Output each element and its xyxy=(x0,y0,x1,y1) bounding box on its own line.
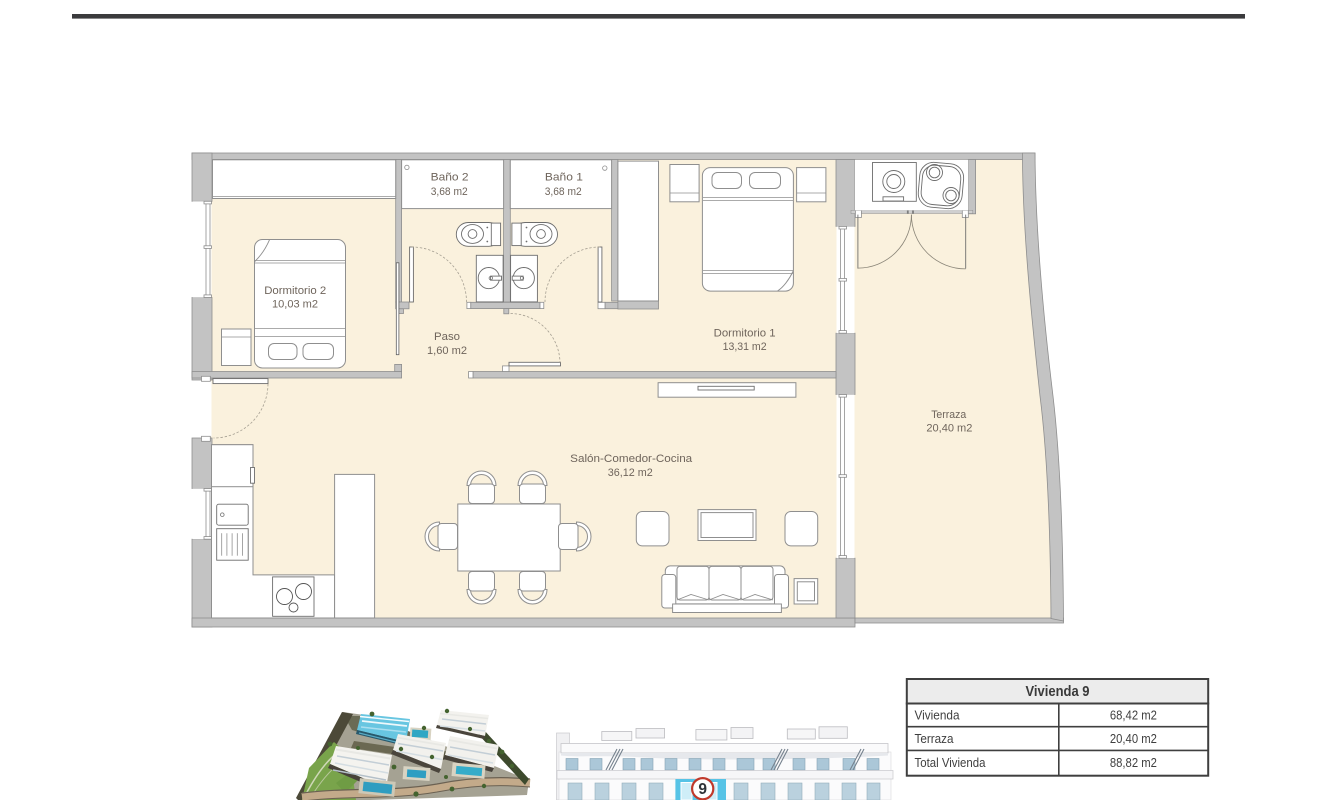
svg-text:Vivienda: Vivienda xyxy=(915,708,961,723)
svg-text:Baño 2: Baño 2 xyxy=(431,172,469,184)
svg-text:20,40 m2: 20,40 m2 xyxy=(926,423,972,435)
svg-text:Salón-Comedor-Cocina: Salón-Comedor-Cocina xyxy=(570,453,693,465)
svg-text:Terraza: Terraza xyxy=(915,731,955,746)
svg-text:Dormitorio 1: Dormitorio 1 xyxy=(714,328,776,340)
svg-text:Total Vivienda: Total Vivienda xyxy=(915,755,987,770)
svg-text:10,03 m2: 10,03 m2 xyxy=(272,299,318,311)
svg-text:88,82 m2: 88,82 m2 xyxy=(1110,755,1157,770)
svg-text:9: 9 xyxy=(698,781,707,798)
svg-text:36,12 m2: 36,12 m2 xyxy=(608,467,653,479)
svg-text:3,68 m2: 3,68 m2 xyxy=(431,186,468,198)
svg-text:Paso: Paso xyxy=(434,331,460,343)
svg-text:68,42 m2: 68,42 m2 xyxy=(1110,708,1157,723)
svg-text:Vivienda 9: Vivienda 9 xyxy=(1026,683,1090,700)
svg-text:3,68 m2: 3,68 m2 xyxy=(545,186,582,198)
svg-text:13,31 m2: 13,31 m2 xyxy=(723,341,767,353)
svg-text:Terraza: Terraza xyxy=(931,409,967,421)
svg-text:Baño 1: Baño 1 xyxy=(545,172,583,184)
svg-text:Dormitorio 2: Dormitorio 2 xyxy=(264,285,326,297)
svg-text:20,40 m2: 20,40 m2 xyxy=(1110,731,1157,746)
svg-text:1,60 m2: 1,60 m2 xyxy=(427,345,467,357)
